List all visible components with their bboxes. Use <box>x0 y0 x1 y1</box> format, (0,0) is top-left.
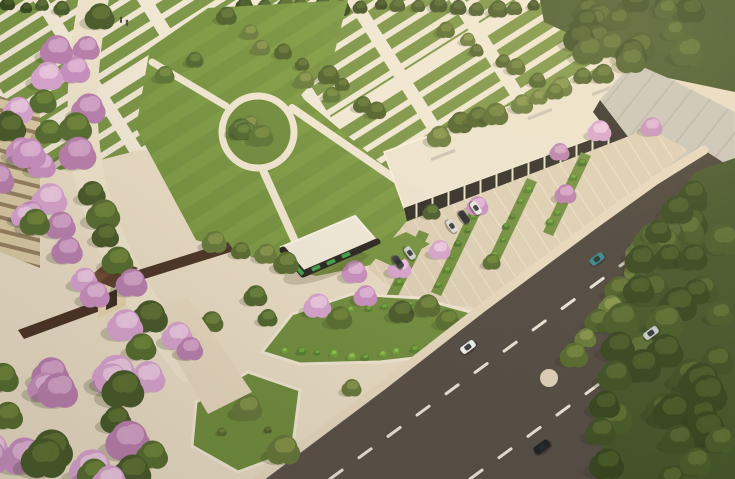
aerial-development-render <box>0 0 735 479</box>
render-layers <box>0 0 735 479</box>
scene-canvas <box>0 0 735 479</box>
vignette-overlay <box>0 0 735 479</box>
